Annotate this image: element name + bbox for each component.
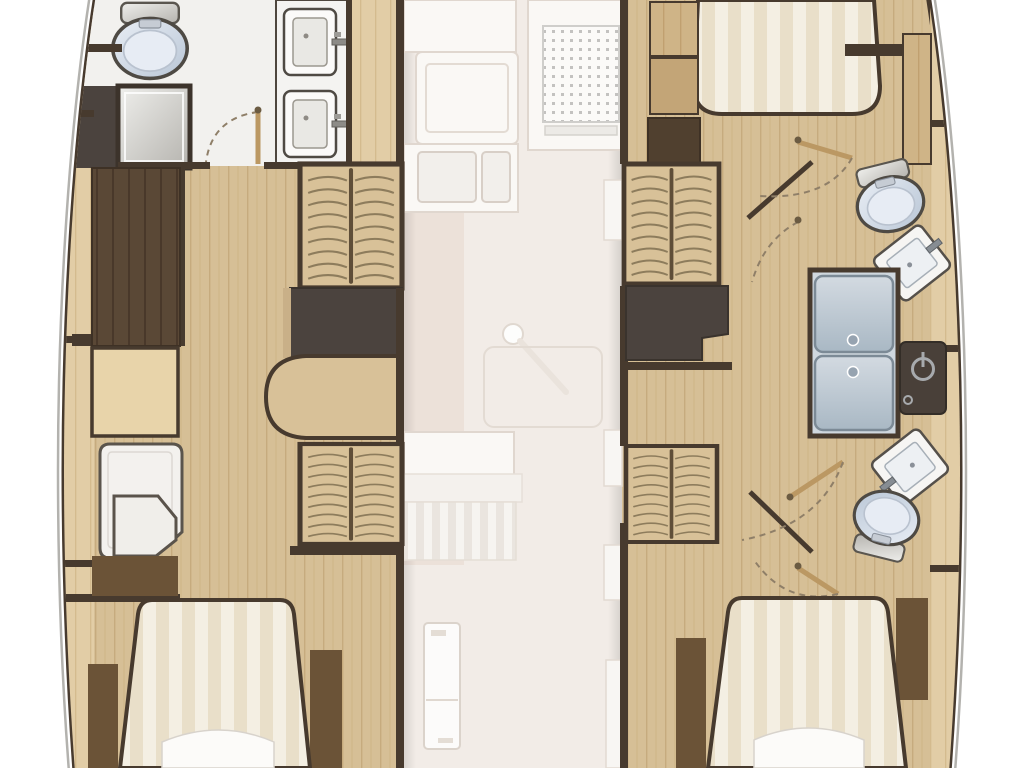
stbd-bed-pillow [754, 728, 864, 768]
port-rounded-step [266, 356, 402, 438]
port-landing [290, 288, 402, 358]
galley-unit [416, 52, 518, 144]
port-toilet [113, 3, 187, 79]
galley-counter [404, 0, 516, 52]
stove-icon [543, 26, 619, 122]
stove-handle [545, 126, 617, 135]
stbd-staircase-forward [624, 164, 719, 284]
stbd-staircase-aft [626, 446, 717, 542]
refrigerator-handle-low [438, 738, 453, 743]
port-passage-strip [352, 0, 402, 166]
salon-seat-striped [404, 502, 516, 560]
stbd-fwd-wall [845, 44, 903, 56]
port-staircase-forward [300, 164, 402, 288]
stbd-locker-1 [650, 2, 698, 56]
refrigerator-handle [431, 630, 446, 636]
shower-stall [118, 86, 190, 168]
galley-sink-basin-small [482, 152, 510, 202]
stbd-wardrobe [648, 118, 700, 166]
refrigerator [424, 623, 460, 749]
stbd-fwd-door-hinge [795, 137, 802, 144]
stbd-fwd-locker [903, 34, 931, 164]
shower-knob-lower [848, 367, 859, 378]
stbd-double-bed-forward [694, 0, 880, 114]
floor-plan-image [0, 0, 1024, 768]
salon-shelf [404, 474, 522, 502]
stbd-aftcabin-door-hinge [795, 563, 802, 570]
port-bed-pillow [162, 730, 274, 768]
stbd-aftbath-door-hinge [787, 494, 794, 501]
stbd-bath-door-hinge [795, 217, 802, 224]
salon-deck [402, 0, 622, 768]
stbd-locker-2 [650, 58, 698, 114]
port-seat [114, 496, 176, 556]
port-wardrobe [92, 168, 180, 346]
stbd-landing-wall [626, 362, 732, 370]
port-desk [92, 348, 178, 436]
floor-plan-svg [0, 0, 1024, 768]
shower-knob-upper [848, 335, 859, 346]
port-staircase-aft [300, 444, 402, 544]
vanity-wall [346, 0, 352, 166]
salon-shadow-left [402, 0, 416, 768]
port-bath-door-hinge [255, 107, 262, 114]
galley-sink-basin [418, 152, 476, 202]
port-landing-edge [283, 288, 291, 358]
